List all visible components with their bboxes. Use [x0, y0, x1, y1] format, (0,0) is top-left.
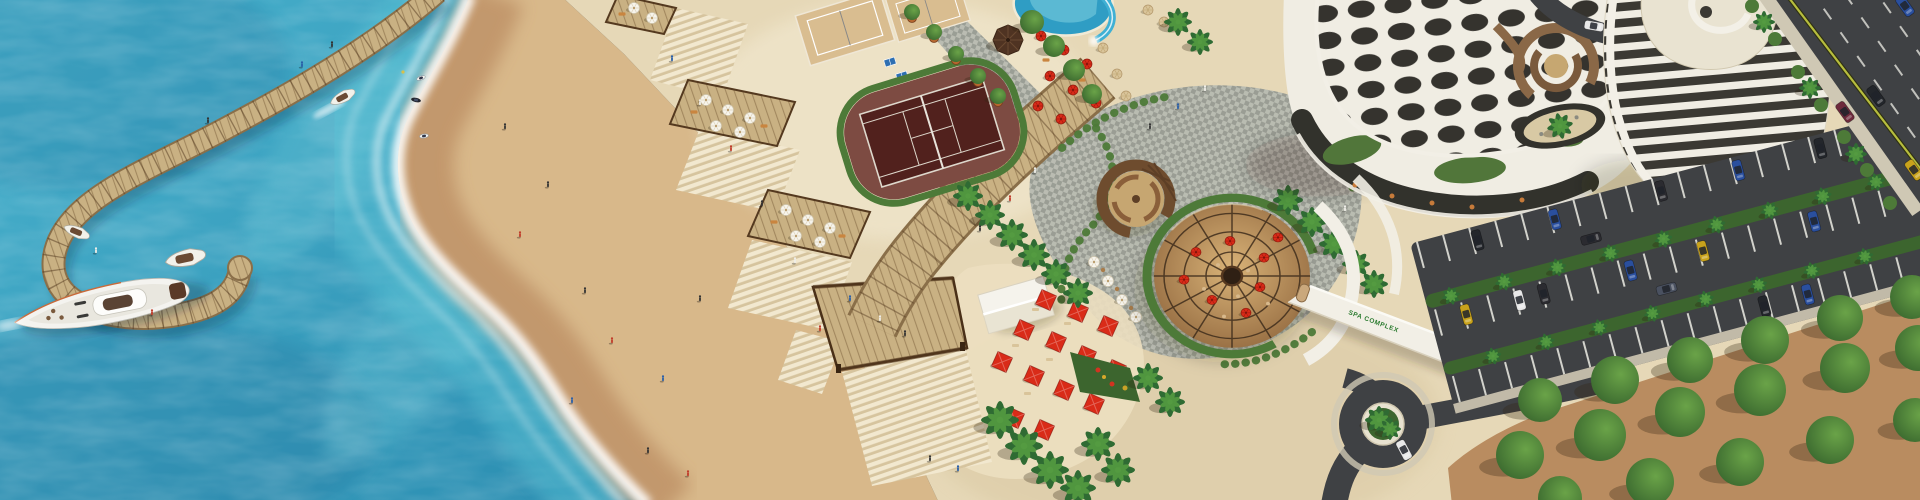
resort-aerial-rendering: SPA COMPLEX	[0, 0, 1920, 500]
scene-canvas: SPA COMPLEX	[0, 0, 1920, 500]
roundabout	[1334, 375, 1432, 473]
